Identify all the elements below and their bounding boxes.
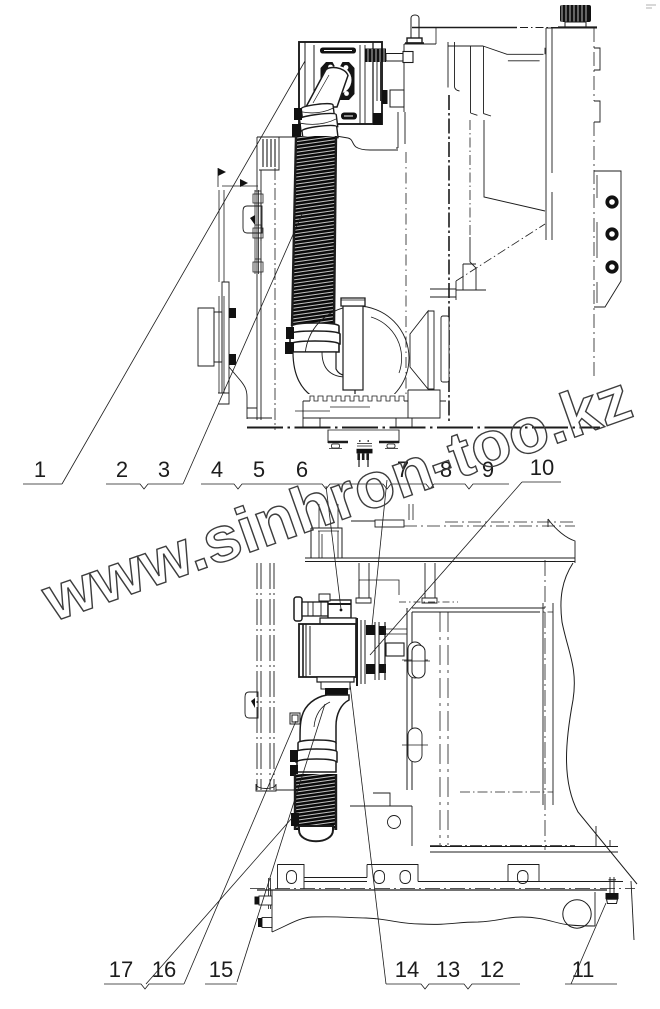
svg-text:4: 4	[211, 457, 223, 482]
svg-text:2: 2	[116, 457, 128, 482]
svg-text:13: 13	[436, 957, 460, 982]
svg-text:11: 11	[572, 957, 595, 982]
svg-text:15: 15	[209, 957, 233, 982]
svg-text:1: 1	[34, 457, 46, 482]
svg-text:3: 3	[158, 457, 170, 482]
svg-text:5: 5	[253, 457, 265, 482]
svg-text:14: 14	[395, 957, 419, 982]
svg-text:17: 17	[109, 957, 133, 982]
svg-text:16: 16	[152, 957, 176, 982]
svg-text:12: 12	[480, 957, 504, 982]
